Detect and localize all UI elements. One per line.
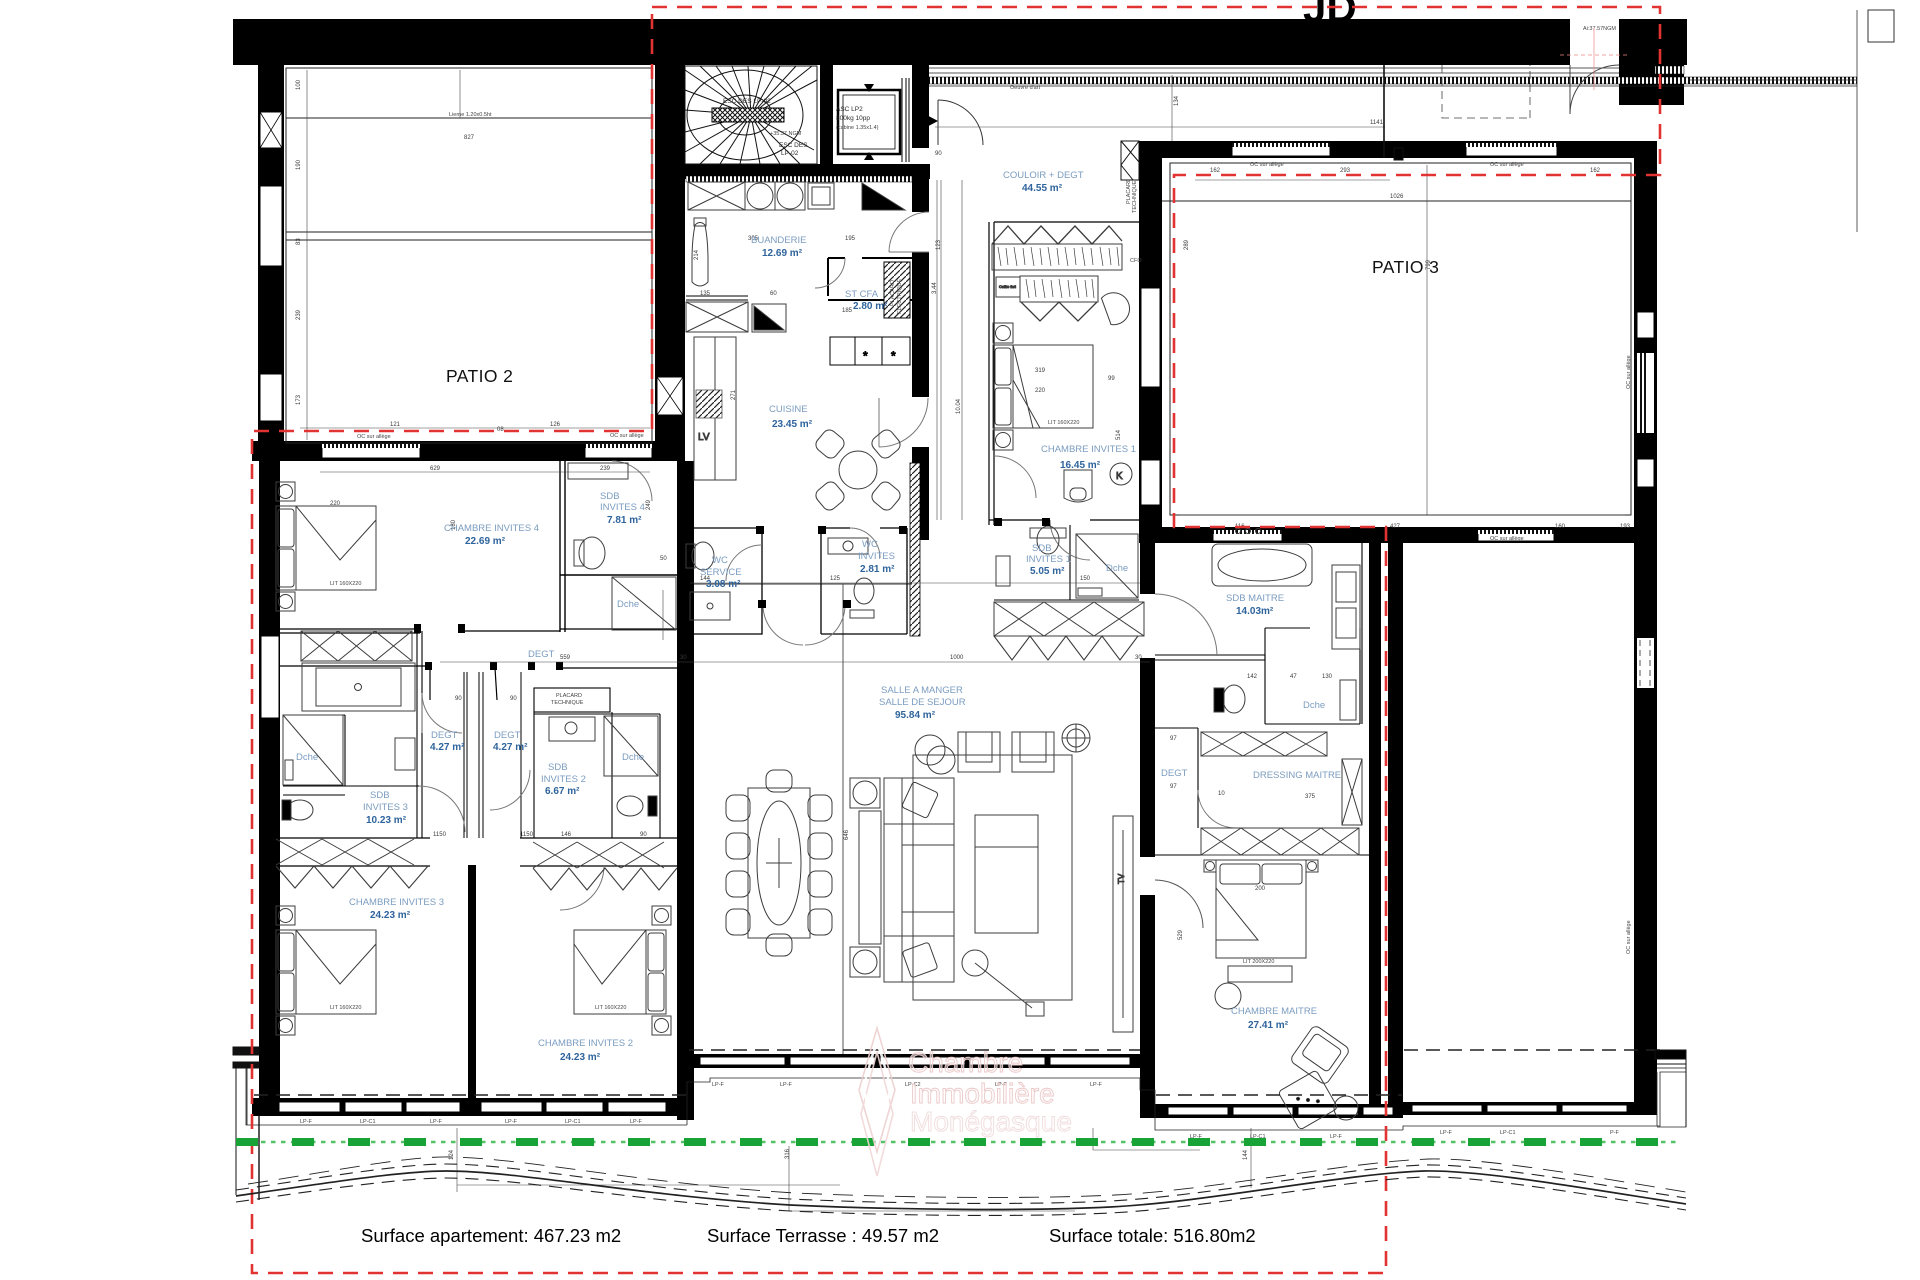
svg-text:144: 144 <box>1243 1149 1249 1160</box>
svg-text:90: 90 <box>510 696 517 702</box>
svg-text:PATIO 2: PATIO 2 <box>446 366 513 386</box>
svg-text:319: 319 <box>1035 368 1046 374</box>
svg-text:1026: 1026 <box>1390 194 1404 200</box>
svg-text:160: 160 <box>1555 524 1566 530</box>
svg-text:OC sur allège: OC sur allège <box>610 433 644 439</box>
svg-text:08: 08 <box>497 427 504 433</box>
svg-text:SDB: SDB <box>1032 543 1052 554</box>
svg-text:44.55 m²: 44.55 m² <box>1022 183 1063 194</box>
svg-text:83: 83 <box>296 238 302 245</box>
svg-text:7.81 m²: 7.81 m² <box>607 515 642 526</box>
svg-text:293: 293 <box>1340 168 1351 174</box>
svg-text:1141: 1141 <box>1370 120 1384 126</box>
svg-text:173: 173 <box>296 394 302 405</box>
svg-text:90: 90 <box>455 696 462 702</box>
svg-text:LIT 160X220: LIT 160X220 <box>330 1005 361 1011</box>
svg-text:130: 130 <box>1322 674 1333 680</box>
svg-text:Dche: Dche <box>1106 563 1128 574</box>
svg-text:Immobilière: Immobilière <box>910 1078 1055 1109</box>
svg-text:126: 126 <box>550 422 561 428</box>
svg-text:629: 629 <box>430 466 441 472</box>
svg-text:OC sur allège: OC sur allège <box>1250 162 1284 168</box>
svg-text:ELECTRIQUE: ELECTRIQUE <box>897 279 903 314</box>
svg-text:INVITES 2: INVITES 2 <box>541 774 586 785</box>
svg-text:SERVICE: SERVICE <box>700 567 742 578</box>
svg-text:TECHNIQUE: TECHNIQUE <box>551 700 584 706</box>
svg-text:220: 220 <box>1035 388 1046 394</box>
svg-text:LP-F: LP-F <box>630 1119 643 1125</box>
svg-text:559: 559 <box>560 655 571 661</box>
svg-text:SDB: SDB <box>370 790 390 801</box>
svg-text:LP-F: LP-F <box>712 1082 725 1088</box>
svg-text:1000: 1000 <box>950 655 964 661</box>
svg-text:214: 214 <box>694 249 700 260</box>
svg-text:2.81 m²: 2.81 m² <box>860 564 895 575</box>
svg-text:27.41 m²: 27.41 m² <box>1248 1020 1289 1031</box>
svg-text:WC: WC <box>862 539 878 550</box>
svg-text:97: 97 <box>1170 736 1177 742</box>
svg-text:200: 200 <box>1255 886 1266 892</box>
svg-text:97: 97 <box>1170 784 1177 790</box>
svg-text:Surface apartement: 467.23 m2: Surface apartement: 467.23 m2 <box>361 1225 621 1246</box>
svg-text:Dche: Dche <box>622 752 644 763</box>
svg-text:47: 47 <box>1290 674 1297 680</box>
svg-text:Monégasque: Monégasque <box>910 1106 1072 1137</box>
svg-text:100: 100 <box>296 79 302 90</box>
svg-text:4.27 m²: 4.27 m² <box>430 742 465 753</box>
svg-text:LP-F: LP-F <box>505 1119 518 1125</box>
svg-text:OC sur allège: OC sur allège <box>357 434 391 440</box>
svg-text:30: 30 <box>680 655 687 661</box>
svg-text:514: 514 <box>1116 429 1122 440</box>
svg-text:PLACARD: PLACARD <box>556 693 582 699</box>
svg-text:146: 146 <box>561 832 572 838</box>
svg-text:1150: 1150 <box>433 832 447 838</box>
svg-text:162: 162 <box>1590 168 1601 174</box>
svg-text:90: 90 <box>935 151 942 157</box>
svg-text:12.69 m²: 12.69 m² <box>762 248 803 259</box>
svg-text:Chambre: Chambre <box>908 1047 1023 1078</box>
svg-text:LIT 160X220: LIT 160X220 <box>330 581 361 587</box>
svg-text:3.44: 3.44 <box>932 282 938 294</box>
svg-text:95.84 m²: 95.84 m² <box>895 710 936 721</box>
svg-text:185: 185 <box>842 308 853 314</box>
svg-text:LV: LV <box>698 432 710 443</box>
svg-text:Oeuvre d'art: Oeuvre d'art <box>1010 85 1041 91</box>
svg-text:DRESSING MAITRE: DRESSING MAITRE <box>1253 770 1341 781</box>
svg-text:CHAMBRE MAITRE: CHAMBRE MAITRE <box>1231 1006 1317 1017</box>
svg-text:SALLE DE SEJOUR: SALLE DE SEJOUR <box>879 697 966 708</box>
svg-text:LP-C1: LP-C1 <box>1500 1130 1516 1136</box>
svg-text:INVITES 3: INVITES 3 <box>363 802 408 813</box>
svg-text:24.23 m²: 24.23 m² <box>370 910 411 921</box>
svg-text:(cabine 1.35x1.4): (cabine 1.35x1.4) <box>836 125 879 131</box>
svg-text:5.05 m²: 5.05 m² <box>1030 566 1065 577</box>
svg-text:LIT 160X220: LIT 160X220 <box>595 1005 626 1011</box>
svg-text:124: 124 <box>449 1149 455 1160</box>
svg-text:529: 529 <box>1178 929 1184 940</box>
svg-text:SDB: SDB <box>548 762 568 773</box>
svg-text:CFO: CFO <box>1130 258 1142 264</box>
svg-text:COULOIR + DEGT: COULOIR + DEGT <box>1003 170 1084 181</box>
svg-text:Lierne 1.20x0.5ht: Lierne 1.20x0.5ht <box>449 112 492 118</box>
svg-text:DEGT: DEGT <box>528 649 555 660</box>
svg-text:316: 316 <box>785 1148 791 1159</box>
svg-text:OC sur allège: OC sur allège <box>1490 536 1524 542</box>
svg-text:*: * <box>891 349 896 363</box>
svg-text:LP-F: LP-F <box>1330 1134 1343 1140</box>
svg-text:CUISINE: CUISINE <box>769 404 808 415</box>
svg-text:271: 271 <box>731 389 737 400</box>
svg-text:123: 123 <box>936 239 942 250</box>
svg-text:10.04: 10.04 <box>956 398 962 414</box>
svg-text:6.67 m²: 6.67 m² <box>545 786 580 797</box>
svg-text:OC sur allège: OC sur allège <box>1490 162 1524 168</box>
svg-text:646: 646 <box>844 829 850 840</box>
svg-text:CHAMBRE INVITES 4: CHAMBRE INVITES 4 <box>444 523 539 534</box>
svg-text:193: 193 <box>1620 524 1631 530</box>
svg-text:LP-C1: LP-C1 <box>360 1119 376 1125</box>
svg-text:LP-F: LP-F <box>1090 1082 1103 1088</box>
svg-text:PATIO 3: PATIO 3 <box>1372 257 1439 277</box>
svg-text:DEGT: DEGT <box>1161 768 1188 779</box>
svg-text:375: 375 <box>1305 794 1316 800</box>
svg-text:ESC DES: ESC DES <box>779 142 808 149</box>
svg-text:ASC LP2: ASC LP2 <box>836 106 863 113</box>
svg-text:INVITES 4: INVITES 4 <box>600 502 645 513</box>
svg-text:SDB: SDB <box>600 491 620 502</box>
svg-text:Coffre fort: Coffre fort <box>999 285 1017 289</box>
svg-text:LP-F: LP-F <box>430 1119 443 1125</box>
svg-text:+35.37 NGM: +35.37 NGM <box>770 131 802 137</box>
svg-text:TV: TV <box>1117 873 1126 884</box>
svg-text:142: 142 <box>1247 674 1258 680</box>
svg-text:Dche: Dche <box>1303 700 1325 711</box>
svg-text:30: 30 <box>1135 655 1142 661</box>
svg-text:150: 150 <box>1080 576 1091 582</box>
svg-text:1150: 1150 <box>520 832 534 838</box>
svg-text:23.45 m²: 23.45 m² <box>772 419 813 430</box>
svg-text:ESC DES LP-02: ESC DES LP-02 <box>723 98 771 105</box>
svg-text:SALLE A MANGER: SALLE A MANGER <box>881 685 963 696</box>
svg-text:SDB MAITRE: SDB MAITRE <box>1226 593 1284 604</box>
svg-text:195: 195 <box>845 236 856 242</box>
svg-text:LP-C1: LP-C1 <box>565 1119 581 1125</box>
svg-text:CHAMBRE INVITES 3: CHAMBRE INVITES 3 <box>349 897 444 908</box>
svg-text:10: 10 <box>1218 791 1225 797</box>
svg-text:TECHNIQUE: TECHNIQUE <box>1132 180 1138 213</box>
svg-text:LP-02: LP-02 <box>781 150 799 157</box>
svg-text:24.23 m²: 24.23 m² <box>560 1052 601 1063</box>
svg-text:134: 134 <box>1174 95 1180 106</box>
svg-text:50: 50 <box>660 556 667 562</box>
svg-text:LIT 200X220: LIT 200X220 <box>1243 959 1274 965</box>
svg-text:Ai:37.57NGM: Ai:37.57NGM <box>1583 26 1616 32</box>
svg-text:162: 162 <box>1210 168 1221 174</box>
svg-text:2.80 m²: 2.80 m² <box>853 301 888 312</box>
svg-text:427: 427 <box>1390 524 1401 530</box>
svg-text:3.08 m²: 3.08 m² <box>706 579 741 590</box>
svg-text:LP-F: LP-F <box>780 1082 793 1088</box>
svg-text:OC sur allège: OC sur allège <box>1626 355 1632 389</box>
svg-text:LIT 160X220: LIT 160X220 <box>1048 420 1079 426</box>
svg-text:BUANDERIE: BUANDERIE <box>751 235 806 246</box>
svg-text:220: 220 <box>330 501 341 507</box>
svg-text:*: * <box>863 349 868 363</box>
svg-text:4.27 m²: 4.27 m² <box>493 742 528 753</box>
svg-text:ST CFA: ST CFA <box>845 289 879 300</box>
svg-text:10.23 m²: 10.23 m² <box>366 815 407 826</box>
svg-text:CHAMBRE INVITES 2: CHAMBRE INVITES 2 <box>538 1038 633 1049</box>
svg-text:800kg 10pp: 800kg 10pp <box>836 115 870 122</box>
svg-text:99: 99 <box>1108 376 1115 382</box>
svg-text:239: 239 <box>600 466 611 472</box>
svg-text:DEGT: DEGT <box>431 730 458 741</box>
svg-text:Surface totale: 516.80m2: Surface totale: 516.80m2 <box>1049 1225 1256 1246</box>
svg-text:827: 827 <box>464 135 475 141</box>
svg-text:LP-F: LP-F <box>300 1119 313 1125</box>
svg-text:Dche: Dche <box>617 599 639 610</box>
svg-text:DEGT: DEGT <box>494 730 521 741</box>
svg-text:60: 60 <box>770 291 777 297</box>
svg-text:121: 121 <box>390 422 401 428</box>
svg-text:239: 239 <box>296 309 302 320</box>
svg-text:Dche: Dche <box>296 752 318 763</box>
svg-text:14.03m²: 14.03m² <box>1236 606 1274 617</box>
svg-text:CHAMBRE INVITES 1: CHAMBRE INVITES 1 <box>1041 444 1136 455</box>
svg-text:OC sur allège: OC sur allège <box>1626 920 1632 954</box>
svg-text:125: 125 <box>830 576 841 582</box>
svg-text:289: 289 <box>1184 239 1190 250</box>
svg-text:LP-F: LP-F <box>1440 1130 1453 1136</box>
svg-text:PLACARD: PLACARD <box>890 280 896 306</box>
svg-text:WC: WC <box>712 555 728 566</box>
svg-text:22.69 m²: 22.69 m² <box>465 536 506 547</box>
svg-text:249: 249 <box>646 499 652 510</box>
svg-text:135: 135 <box>700 291 711 297</box>
svg-text:P-F: P-F <box>1610 1130 1620 1136</box>
svg-text:K: K <box>1116 471 1123 482</box>
svg-text:INVITES 1: INVITES 1 <box>1026 554 1071 565</box>
svg-text:Surface Terrasse : 49.57 m2: Surface Terrasse : 49.57 m2 <box>707 1225 939 1246</box>
svg-text:90: 90 <box>640 832 647 838</box>
svg-text:INVITES: INVITES <box>858 551 895 562</box>
svg-text:16.45 m²: 16.45 m² <box>1060 460 1101 471</box>
svg-text:190: 190 <box>296 159 302 170</box>
svg-text:JD: JD <box>1303 0 1357 31</box>
